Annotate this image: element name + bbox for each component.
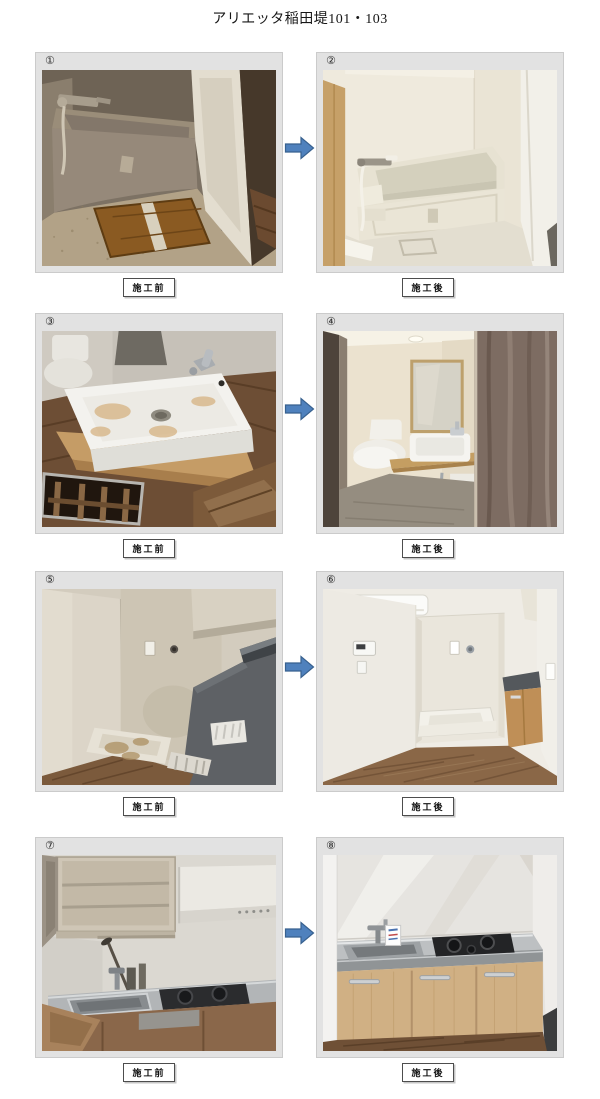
panel-before-laundry: ⑤ (35, 571, 283, 792)
before-after-arrow-icon (284, 654, 315, 680)
photo-number: ⑥ (326, 573, 336, 586)
photo-number: ④ (326, 315, 336, 328)
photo-laundry-after (323, 589, 557, 785)
arrow-shape (286, 923, 314, 944)
arrow-shape (286, 138, 314, 159)
before-after-arrow-icon (284, 396, 315, 422)
caption-after: 施工後 (402, 1063, 454, 1082)
photo-kitchen-after (323, 855, 557, 1051)
caption-after: 施工後 (402, 539, 454, 558)
panel-after-washroom: ④ (316, 313, 564, 534)
caption-before: 施工前 (123, 797, 175, 816)
photo-number: ⑧ (326, 839, 336, 852)
panel-after-kitchen: ⑧ (316, 837, 564, 1058)
arrow-shape (286, 399, 314, 420)
photo-washbasin-before (42, 331, 276, 527)
photo-washroom-after (323, 331, 557, 527)
photo-kitchen-before (42, 855, 276, 1051)
panel-after-bathroom: ② (316, 52, 564, 273)
caption-before: 施工前 (123, 278, 175, 297)
photo-number: ② (326, 54, 336, 67)
row-laundry: ⑤ (0, 571, 600, 821)
photo-bathtub-before (42, 70, 276, 266)
photo-number: ③ (45, 315, 55, 328)
row-kitchen: ⑦ (0, 837, 600, 1087)
panel-before-washbasin: ③ (35, 313, 283, 534)
before-after-arrow-icon (284, 135, 315, 161)
panel-before-bathroom: ① (35, 52, 283, 273)
photo-laundry-before (42, 589, 276, 785)
photo-number: ⑦ (45, 839, 55, 852)
caption-after: 施工後 (402, 797, 454, 816)
document-title: アリエッタ稲田堤101・103 (0, 8, 600, 28)
caption-after: 施工後 (402, 278, 454, 297)
before-after-arrow-icon (284, 920, 315, 946)
panel-before-kitchen: ⑦ (35, 837, 283, 1058)
photo-number: ⑤ (45, 573, 55, 586)
document-page: アリエッタ稲田堤101・103 ① (0, 0, 600, 1099)
caption-before: 施工前 (123, 539, 175, 558)
caption-before: 施工前 (123, 1063, 175, 1082)
panel-after-laundry: ⑥ (316, 571, 564, 792)
photo-number: ① (45, 54, 55, 67)
arrow-shape (286, 657, 314, 678)
row-washroom: ③ (0, 313, 600, 563)
photo-bathtub-after (323, 70, 557, 266)
row-bathroom: ① (0, 52, 600, 302)
